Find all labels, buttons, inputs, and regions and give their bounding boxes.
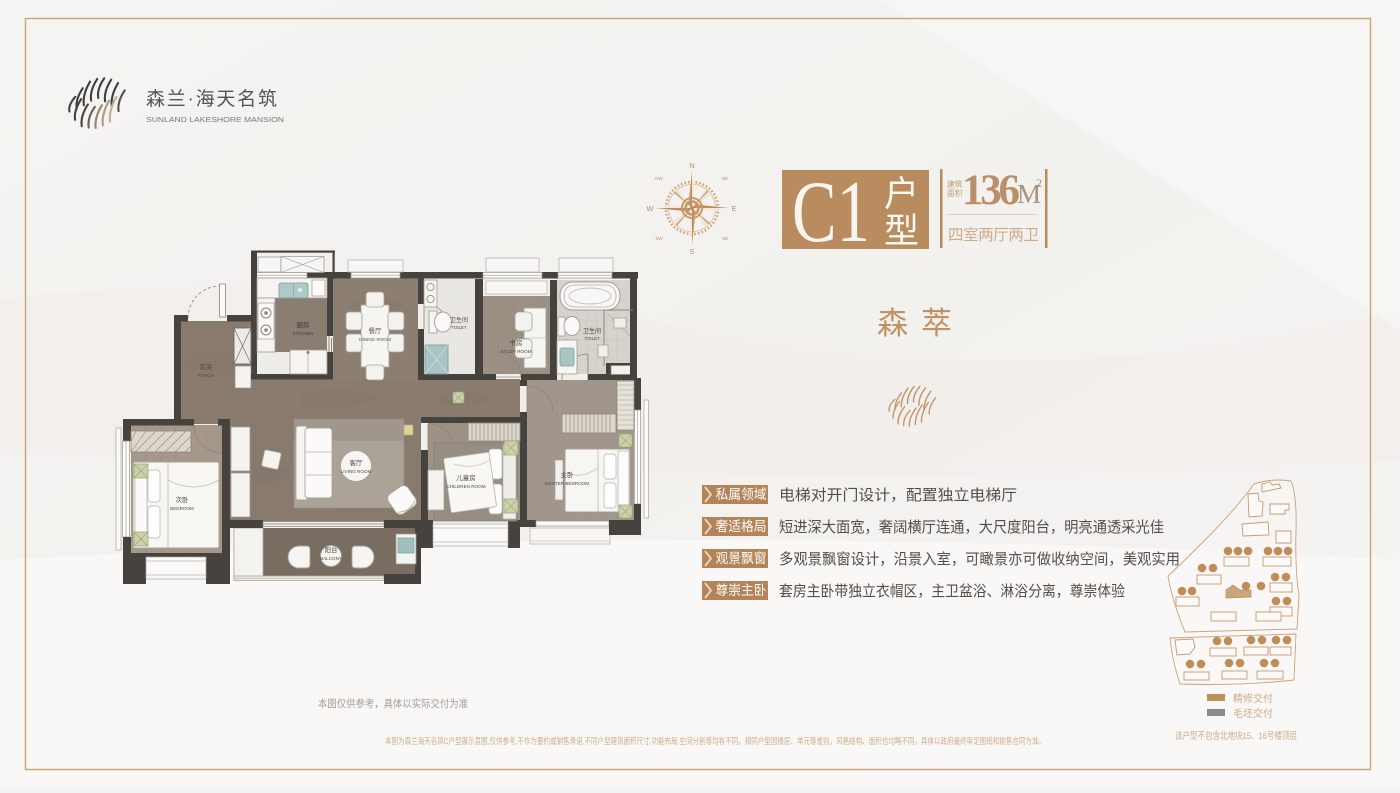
svg-text:DINING ROOM: DINING ROOM <box>359 337 391 342</box>
svg-text:136: 136 <box>962 167 1020 214</box>
svg-text:儿童房: 儿童房 <box>456 473 476 482</box>
svg-text:次卧: 次卧 <box>176 495 190 504</box>
svg-text:书房: 书房 <box>510 338 523 347</box>
svg-text:LIVING ROOM: LIVING ROOM <box>341 469 372 474</box>
svg-text:NW: NW <box>655 176 663 181</box>
svg-text:型: 型 <box>884 212 919 251</box>
svg-text:S: S <box>689 247 694 256</box>
svg-text:厨房: 厨房 <box>297 320 310 329</box>
svg-text:私属领域: 私属领域 <box>716 487 767 502</box>
svg-text:MASTER BEDROOM: MASTER BEDROOM <box>545 481 589 486</box>
svg-text:N: N <box>689 161 694 170</box>
svg-text:SUNLAND LAKESHORE MANSION: SUNLAND LAKESHORE MANSION <box>146 117 284 124</box>
svg-text:电梯对开门设计，配置独立电梯厅: 电梯对开门设计，配置独立电梯厅 <box>779 487 1017 504</box>
svg-text:SW: SW <box>655 236 663 241</box>
svg-text:E: E <box>731 204 736 213</box>
svg-text:精修交付: 精修交付 <box>1233 692 1273 705</box>
svg-text:本图为森兰海天名筑C户型展示意图,仅供参考,不作为要约或销售: 本图为森兰海天名筑C户型展示意图,仅供参考,不作为要约或销售承诺,不同户型建筑面… <box>385 736 1045 746</box>
svg-text:客厅: 客厅 <box>350 458 364 467</box>
svg-text:CHILDREN ROOM: CHILDREN ROOM <box>446 484 485 489</box>
svg-text:KITCHEN: KITCHEN <box>293 331 313 336</box>
svg-text:NE: NE <box>722 176 728 181</box>
svg-text:多观景飘窗设计，沿景入室，可瞰景亦可做收纳空间，美观实用: 多观景飘窗设计，沿景入室，可瞰景亦可做收纳空间，美观实用 <box>779 550 1180 568</box>
svg-text:卫生间: 卫生间 <box>583 327 601 335</box>
svg-text:观景飘窗: 观景飘窗 <box>716 550 767 566</box>
svg-text:STUDY ROOM: STUDY ROOM <box>500 349 531 354</box>
svg-text:餐厅: 餐厅 <box>369 326 383 335</box>
svg-text:短进深大面宽，奢阔横厅连通，大尺度阳台，明亮通透采光佳: 短进深大面宽，奢阔横厅连通，大尺度阳台，明亮通透采光佳 <box>779 519 1164 536</box>
svg-text:SE: SE <box>722 236 728 241</box>
svg-text:建筑: 建筑 <box>947 179 963 189</box>
svg-text:TOILET: TOILET <box>584 336 600 341</box>
svg-text:户: 户 <box>884 175 919 214</box>
svg-text:奢适格局: 奢适格局 <box>716 519 767 534</box>
svg-text:毛坯交付: 毛坯交付 <box>1233 707 1273 720</box>
svg-text:主卧: 主卧 <box>561 470 575 479</box>
svg-text:2: 2 <box>1036 176 1042 190</box>
svg-text:该户型不包含北地块15、16号楼顶层: 该户型不包含北地块15、16号楼顶层 <box>1175 730 1297 742</box>
svg-text:BALCONY: BALCONY <box>320 556 342 561</box>
svg-text:套房主卧带独立衣帽区，主卫盆浴、淋浴分离，尊崇体验: 套房主卧带独立衣帽区，主卫盆浴、淋浴分离，尊崇体验 <box>779 583 1125 600</box>
svg-text:森萃: 森萃 <box>877 306 965 341</box>
svg-text:阳台: 阳台 <box>325 545 338 554</box>
svg-text:尊崇主卧: 尊崇主卧 <box>716 583 767 598</box>
svg-text:W: W <box>646 204 654 213</box>
svg-text:面积: 面积 <box>947 188 963 198</box>
svg-text:四室两厅两卫: 四室两厅两卫 <box>948 226 1039 244</box>
svg-text:本图仅供参考，具体以实际交付为准: 本图仅供参考，具体以实际交付为准 <box>318 697 468 710</box>
svg-text:玄关: 玄关 <box>200 362 214 371</box>
svg-text:BEDROOM: BEDROOM <box>170 506 194 511</box>
svg-text:卫生间: 卫生间 <box>450 316 468 324</box>
svg-text:PORCH: PORCH <box>198 373 215 378</box>
svg-text:C1: C1 <box>792 164 870 261</box>
svg-text:TOILET: TOILET <box>451 325 467 330</box>
